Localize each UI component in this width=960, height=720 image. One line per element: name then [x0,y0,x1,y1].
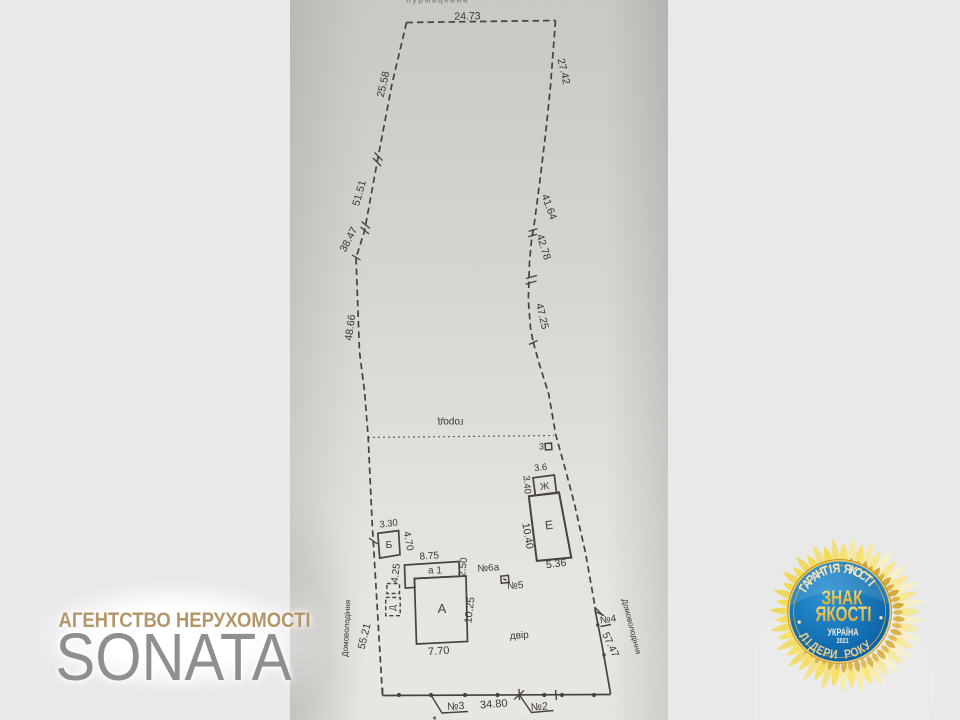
svg-text:Я: Я [832,560,841,576]
svg-text:2021: 2021 [837,638,849,645]
svg-text:УКРАЇНА: УКРАЇНА [828,626,859,639]
svg-text:SONATA: SONATA [56,620,292,695]
svg-text:ЯКОСТІ: ЯКОСТІ [816,603,872,626]
